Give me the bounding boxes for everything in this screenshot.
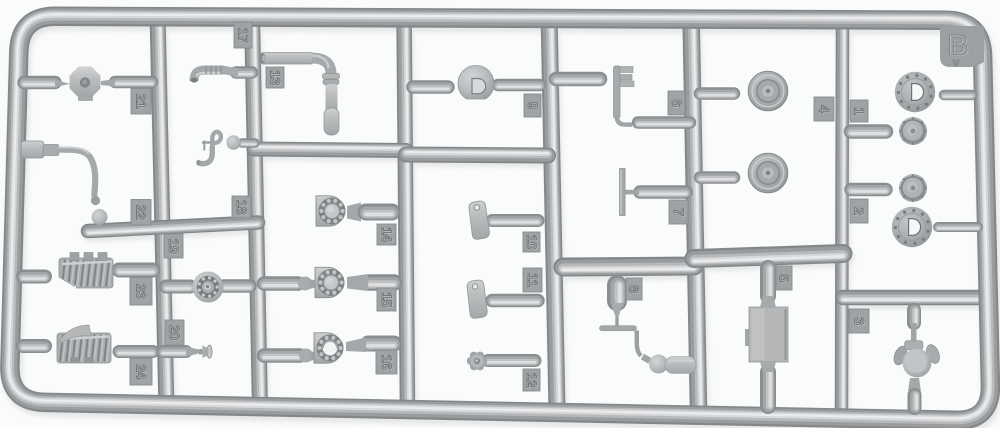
svg-text:23: 23 [133, 284, 149, 299]
svg-text:11: 11 [525, 273, 541, 288]
svg-text:2: 2 [851, 207, 867, 215]
svg-text:9: 9 [525, 102, 541, 110]
svg-text:17: 17 [235, 28, 251, 43]
svg-text:24: 24 [133, 364, 149, 379]
svg-text:12: 12 [524, 373, 540, 388]
svg-text:18: 18 [234, 200, 250, 215]
svg-text:15: 15 [379, 292, 395, 307]
svg-text:3: 3 [851, 317, 867, 325]
svg-text:13: 13 [267, 70, 283, 85]
svg-text:20: 20 [167, 325, 183, 340]
svg-text:16: 16 [379, 355, 395, 370]
svg-text:22: 22 [133, 205, 149, 220]
svg-text:6: 6 [669, 99, 685, 107]
svg-text:14: 14 [379, 227, 395, 242]
svg-text:8: 8 [626, 285, 642, 293]
svg-text:5: 5 [776, 274, 792, 282]
svg-text:1: 1 [851, 107, 867, 115]
svg-text:19: 19 [166, 239, 182, 254]
svg-text:7: 7 [671, 208, 687, 216]
svg-text:v: v [953, 56, 960, 70]
svg-text:4: 4 [816, 105, 832, 113]
svg-text:10: 10 [524, 235, 540, 250]
svg-text:21: 21 [133, 94, 149, 109]
